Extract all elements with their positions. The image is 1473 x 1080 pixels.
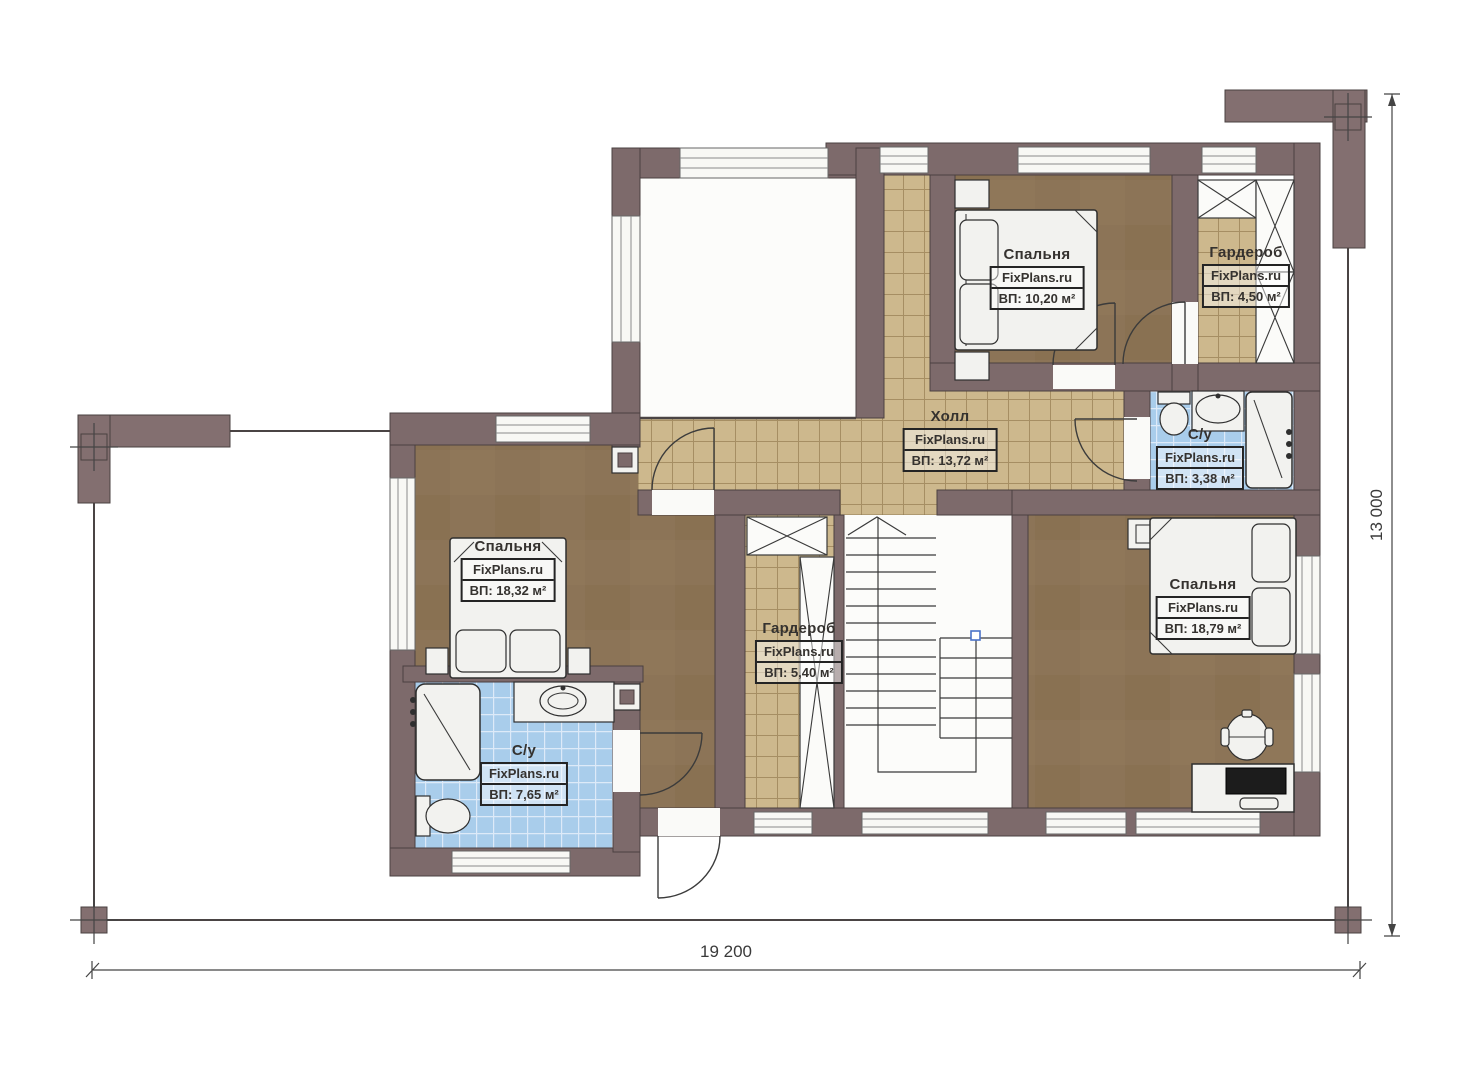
watermark: FixPlans.ru	[905, 430, 996, 449]
window	[880, 147, 928, 173]
desk	[1192, 764, 1294, 812]
room-area: ВП: 13,72 м²	[905, 449, 996, 470]
pillow	[1252, 524, 1290, 582]
room-name: С/у	[1156, 426, 1244, 443]
watermark: FixPlans.ru	[1204, 266, 1288, 285]
column	[612, 447, 638, 473]
room-label-bedroom-left: Спальня FixPlans.ru ВП: 18,32 м²	[461, 538, 556, 602]
window	[612, 216, 640, 342]
floor-plan-canvas	[0, 0, 1473, 1080]
room-name: Спальня	[1156, 576, 1251, 593]
room-area: ВП: 18,32 м²	[463, 579, 554, 600]
room-name: Спальня	[461, 538, 556, 555]
room-name: С/у	[480, 742, 568, 759]
pillow	[1252, 588, 1290, 646]
room-area: ВП: 4,50 м²	[1204, 285, 1288, 306]
room-label-bedroom-top: Спальня FixPlans.ru ВП: 10,20 м²	[990, 246, 1085, 310]
door-balcony	[658, 808, 720, 898]
room-label-wardrobe-top: Гардероб FixPlans.ru ВП: 4,50 м²	[1202, 244, 1290, 308]
room-name: Холл	[903, 408, 998, 425]
window	[1294, 674, 1320, 772]
room-area: ВП: 5,40 м²	[757, 661, 841, 682]
window	[496, 416, 590, 442]
sink	[1192, 391, 1244, 431]
nightstand	[955, 352, 989, 380]
window	[1018, 147, 1150, 173]
column	[614, 684, 640, 710]
room-name: Спальня	[990, 246, 1085, 263]
room-area: ВП: 10,20 м²	[992, 287, 1083, 308]
watermark: FixPlans.ru	[1158, 598, 1249, 617]
watermark: FixPlans.ru	[463, 560, 554, 579]
sink	[514, 682, 614, 722]
watermark: FixPlans.ru	[992, 268, 1083, 287]
pillow	[510, 630, 560, 672]
floor-plan-page: Спальня FixPlans.ru ВП: 10,20 м² Гардеро…	[0, 0, 1473, 1080]
room-label-bedroom-right: Спальня FixPlans.ru ВП: 18,79 м²	[1156, 576, 1251, 640]
nightstand	[426, 648, 448, 674]
pillow	[456, 630, 506, 672]
terrace-column	[70, 896, 118, 944]
shower	[1246, 392, 1292, 488]
dimension-height-label: 13 000	[1367, 489, 1387, 541]
stairs-marker	[971, 631, 980, 640]
window	[754, 812, 812, 834]
window	[1294, 556, 1320, 654]
room-name: Гардероб	[755, 620, 843, 637]
watermark: FixPlans.ru	[1158, 448, 1242, 467]
room-label-wardrobe-center: Гардероб FixPlans.ru ВП: 5,40 м²	[755, 620, 843, 684]
window	[862, 812, 988, 834]
window	[1136, 812, 1260, 834]
room-label-bathroom-left: С/у FixPlans.ru ВП: 7,65 м²	[480, 742, 568, 806]
terrace-column	[1324, 896, 1372, 944]
room-name: Гардероб	[1202, 244, 1290, 261]
room-area: ВП: 7,65 м²	[482, 783, 566, 804]
bathtub	[410, 684, 480, 780]
room-area: ВП: 18,79 м²	[1158, 617, 1249, 638]
window	[1202, 147, 1256, 173]
stairs-floor	[844, 515, 1012, 808]
watermark: FixPlans.ru	[757, 642, 841, 661]
room-label-hall: Холл FixPlans.ru ВП: 13,72 м²	[903, 408, 998, 472]
dimension-width-label: 19 200	[700, 942, 752, 962]
window	[680, 148, 828, 178]
room-label-bathroom-top: С/у FixPlans.ru ВП: 3,38 м²	[1156, 426, 1244, 490]
nightstand	[568, 648, 590, 674]
nightstand	[955, 180, 989, 208]
window	[390, 478, 415, 650]
window	[452, 851, 570, 873]
room-area: ВП: 3,38 м²	[1158, 467, 1242, 488]
window	[1046, 812, 1126, 834]
watermark: FixPlans.ru	[482, 764, 566, 783]
void-room-floor	[640, 178, 856, 418]
